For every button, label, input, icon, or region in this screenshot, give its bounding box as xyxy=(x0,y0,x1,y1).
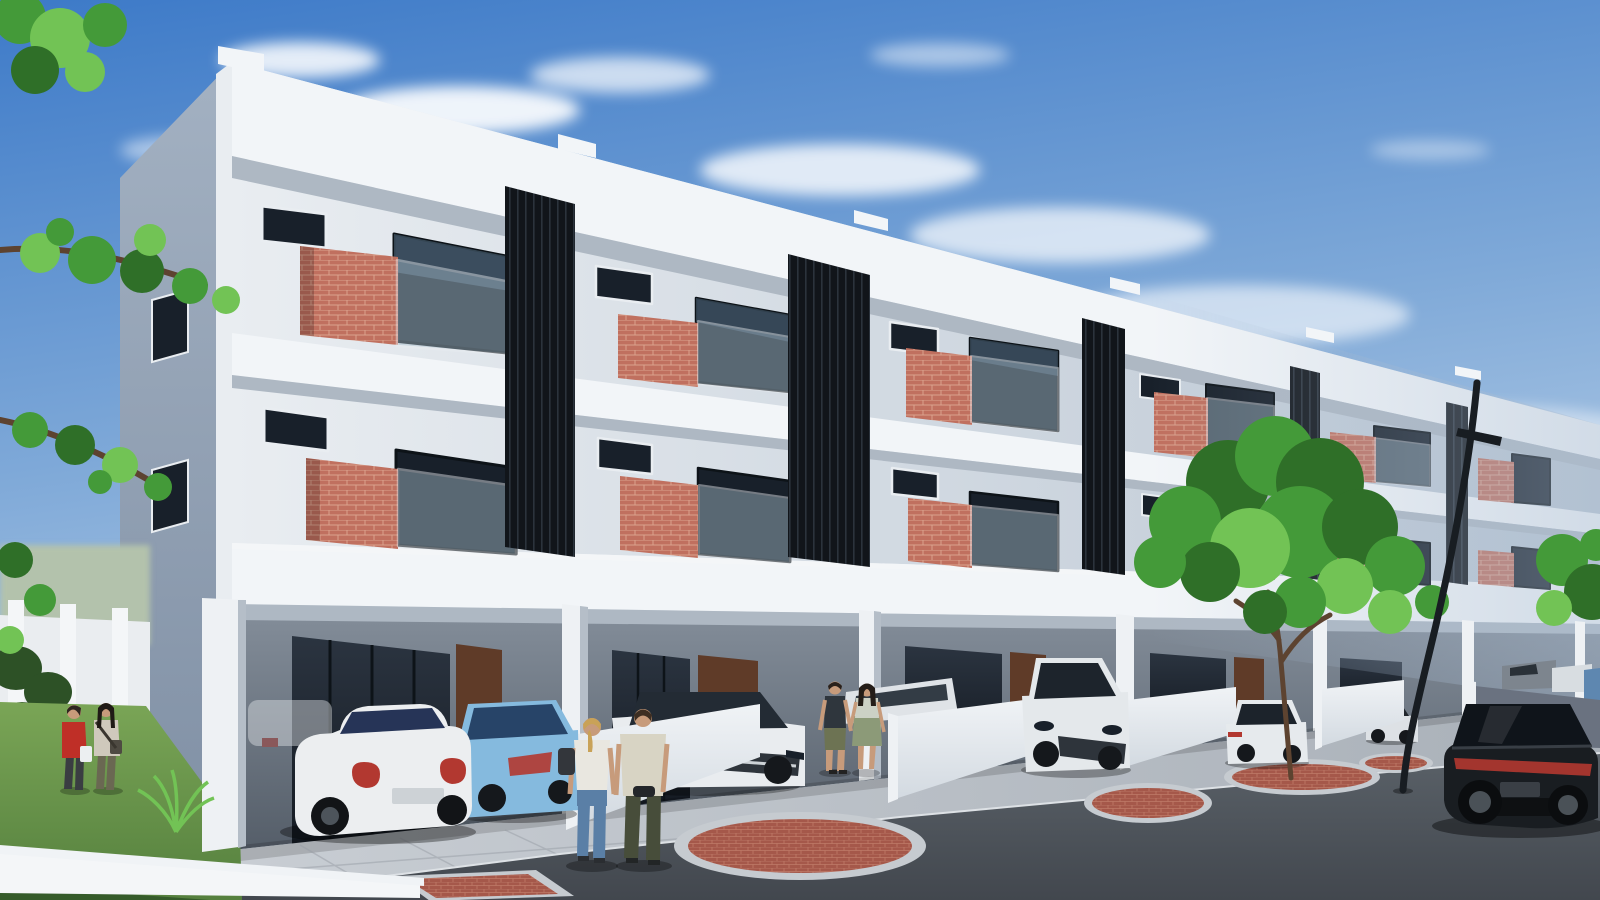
foliage xyxy=(144,473,172,501)
shoe xyxy=(829,770,837,774)
awning-window xyxy=(598,438,652,474)
foliage xyxy=(1368,590,1412,634)
jeans-leg xyxy=(577,804,590,858)
wheel xyxy=(1033,741,1059,767)
architectural-rendering: Modern three-storey townhouse developmen… xyxy=(0,0,1600,900)
foliage xyxy=(68,236,116,284)
trouser-leg xyxy=(646,792,661,862)
column-shade xyxy=(238,600,246,848)
foliage xyxy=(1365,536,1425,596)
cloud xyxy=(1370,140,1490,160)
awning-window xyxy=(596,266,652,304)
taillight xyxy=(262,738,278,747)
brick-parapet xyxy=(620,476,698,558)
shoe xyxy=(578,856,589,861)
louver-screen xyxy=(1082,318,1125,575)
shoe xyxy=(626,858,638,863)
awning-window xyxy=(262,206,326,248)
jeans-leg xyxy=(593,804,606,860)
brick-parapet xyxy=(300,246,398,345)
brick-island xyxy=(1365,756,1427,770)
lamp-pole-tip xyxy=(1474,380,1481,387)
brick-island xyxy=(1092,788,1204,818)
scene-canvas: Modern three-storey townhouse developmen… xyxy=(0,0,1600,900)
foliage xyxy=(83,3,127,47)
glass-railing xyxy=(971,356,1058,432)
wheel-rim xyxy=(1558,795,1578,815)
foliage xyxy=(55,425,95,465)
glass-railing xyxy=(971,506,1058,572)
wheel xyxy=(1371,729,1385,743)
wall-end-post xyxy=(888,713,898,803)
foliage xyxy=(120,249,164,293)
shoe xyxy=(594,858,605,863)
wheel xyxy=(764,756,792,784)
foliage xyxy=(65,52,105,92)
louver-screen xyxy=(505,186,575,557)
person-shadow xyxy=(616,860,672,872)
wheel-rim xyxy=(1469,791,1491,813)
foliage xyxy=(88,470,112,494)
wheel xyxy=(1098,746,1122,770)
foliage xyxy=(24,584,56,616)
brick-shade xyxy=(300,246,314,336)
legs xyxy=(837,748,845,771)
cloud xyxy=(530,57,710,93)
foliage xyxy=(1536,590,1572,626)
headlight xyxy=(1034,721,1054,731)
skirt xyxy=(852,716,882,746)
wheel xyxy=(1283,745,1301,763)
brick-parapet xyxy=(906,348,972,425)
tank-top xyxy=(824,696,846,728)
foliage xyxy=(11,46,59,94)
wheel xyxy=(1237,744,1255,762)
rear-window xyxy=(466,704,568,740)
blue-car xyxy=(1584,668,1600,700)
wheel-rim xyxy=(321,807,339,825)
wheel xyxy=(478,784,506,812)
waist-pack xyxy=(633,786,655,797)
brick-shade xyxy=(306,458,320,541)
tree-right-edge xyxy=(1536,529,1600,626)
brick-island xyxy=(688,819,912,873)
brick-parapet xyxy=(908,498,972,568)
louver-screen xyxy=(788,254,870,567)
foliage xyxy=(46,218,74,246)
body-accent xyxy=(1452,746,1592,748)
foliage xyxy=(212,286,240,314)
shopping-bag xyxy=(80,746,92,762)
shorts xyxy=(824,726,846,750)
wheel xyxy=(437,795,467,825)
license-plate xyxy=(392,788,444,804)
person-shadow xyxy=(852,769,880,777)
wall-end-post xyxy=(1315,687,1322,750)
glass-railing xyxy=(699,485,790,563)
rear-glass xyxy=(1452,704,1592,748)
foliage xyxy=(1134,536,1186,588)
foliage xyxy=(1180,542,1240,602)
license-plate xyxy=(1500,782,1540,797)
awning-window xyxy=(892,468,938,499)
foliage xyxy=(1243,590,1287,634)
fence-post xyxy=(112,608,128,712)
legs xyxy=(826,748,833,771)
taillight xyxy=(1228,732,1242,737)
awning-window xyxy=(264,408,328,451)
brick-parapet xyxy=(618,314,698,387)
headlight xyxy=(1102,725,1122,735)
cloud xyxy=(870,43,1010,67)
shoulder-bag xyxy=(558,748,575,775)
cloud xyxy=(700,144,980,196)
foliage xyxy=(172,268,208,304)
shoe xyxy=(839,770,847,774)
person-shadow xyxy=(566,860,618,872)
foliage xyxy=(134,224,166,256)
legs xyxy=(858,744,864,769)
foliage xyxy=(12,412,48,448)
shoe xyxy=(648,860,660,865)
